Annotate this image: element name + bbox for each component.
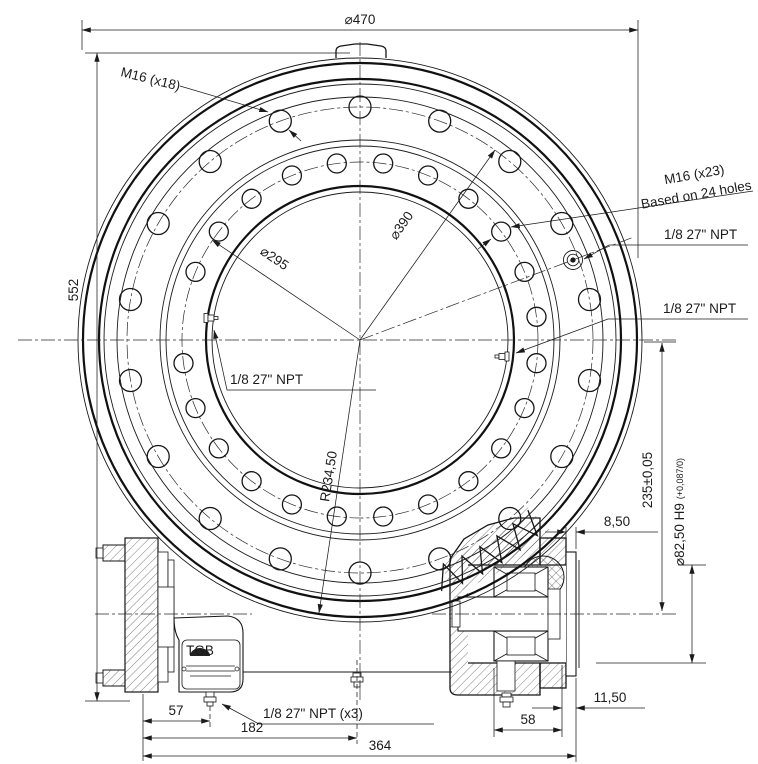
dim-bolt-circle-outer: ⌀390	[386, 209, 416, 243]
seal-carrier	[497, 661, 515, 691]
grease-fitting-axial	[564, 251, 583, 270]
label-npt-bottom: 1/8 27" NPT (x3)	[263, 706, 363, 721]
grease-fitting-right	[495, 352, 509, 361]
motor-face-plate	[158, 587, 174, 647]
grease-fitting-bottom-right	[500, 693, 513, 707]
dim-bolt-circle-inner: ⌀295	[258, 243, 292, 273]
label-npt-mid-right: 1/8 27" NPT	[663, 301, 736, 316]
slewing-ring-front-view	[18, 42, 676, 700]
dim-pilot-bore: ⌀82,50 H9 (+0,087/0)	[672, 458, 687, 566]
filler-plug-boss	[336, 44, 386, 58]
bolt-hole	[199, 151, 221, 173]
label-npt-top-right: 1/8 27" NPT	[664, 227, 737, 242]
dim-left-to-center: 182	[241, 720, 264, 735]
dim-face-offset: 11,50	[594, 690, 627, 705]
bolt-hole	[199, 508, 221, 530]
label-outer-bolts: M16 (x18)	[119, 64, 182, 93]
slewing-drive-drawing: TGB	[0, 0, 758, 764]
dim-overall-height: 552	[66, 279, 81, 302]
tapered-bearing-lower	[494, 631, 548, 661]
grease-fitting-bottom-left	[204, 692, 216, 706]
label-inner-bolts-2: Based on 24 holes	[640, 177, 753, 211]
dim-center-to-worm-axis: 235±0,05	[640, 452, 655, 508]
motor-flange	[125, 538, 158, 692]
dim-overall-width: 364	[369, 738, 392, 753]
technical-drawing-canvas: TGB	[0, 0, 758, 764]
grease-fitting-left	[204, 314, 218, 323]
motor-assembly-section: TGB	[95, 538, 252, 706]
dim-cover-plate-thickness: 8,50	[604, 514, 630, 529]
dim-outer-diameter: ⌀470	[345, 12, 376, 27]
nameplate-logo-text: TGB	[186, 643, 214, 658]
dim-left-to-grease-port: 57	[168, 703, 183, 718]
label-npt-left: 1/8 27" NPT	[230, 372, 303, 387]
dim-bearing-span: 58	[520, 712, 535, 727]
